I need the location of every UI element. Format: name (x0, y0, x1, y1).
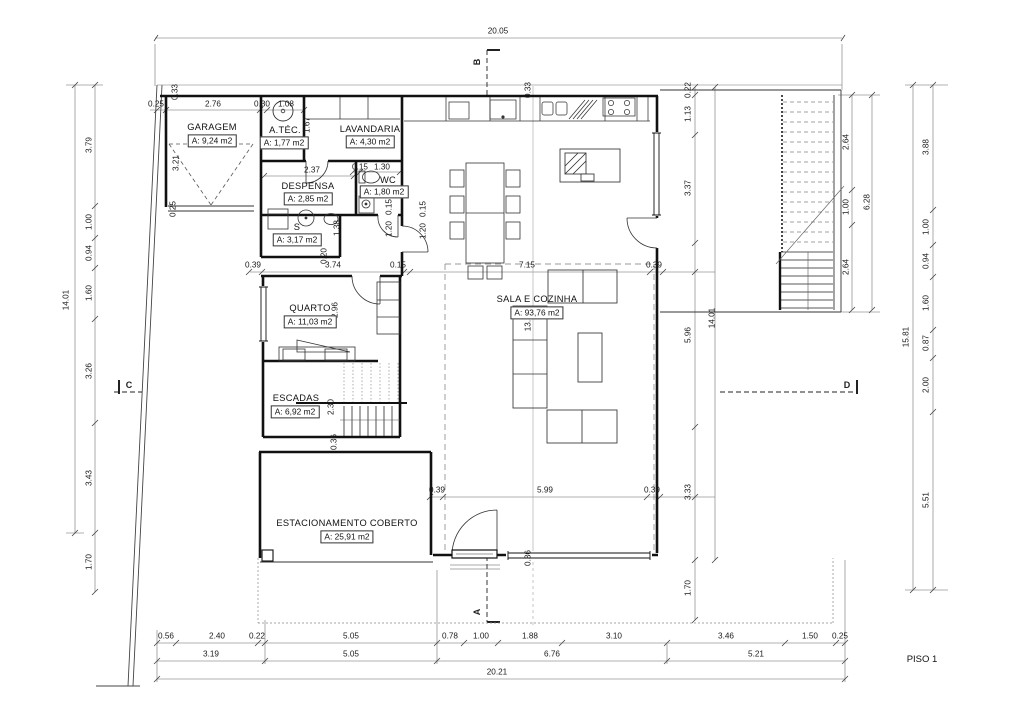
dim-label: 0.87 (921, 335, 930, 351)
dim-label: 5.99 (537, 485, 553, 494)
dim-label: 20.05 (488, 26, 509, 35)
dim-label: 0.36 (329, 434, 338, 450)
room-label-quarto: QUARTO (289, 303, 330, 313)
dim-label: 0.78 (442, 631, 458, 640)
dim-label: 2.64 (841, 259, 850, 275)
room-area-estacionamento: A: 25,91 m2 (320, 530, 373, 543)
dim-label: 2.37 (304, 165, 320, 174)
exterior-stairs (776, 95, 844, 310)
kitchen-counter (306, 97, 650, 121)
room-area-sala: A: 93,76 m2 (510, 306, 563, 319)
dim-label: 0.20 (319, 248, 328, 264)
dim-label: 1.00 (473, 631, 489, 640)
section-marker-d: D (844, 381, 851, 391)
dim-label: 5.51 (921, 492, 930, 508)
dim-label: 2.30 (326, 399, 335, 415)
room-label-estacionamento: ESTACIONAMENTO COBERTO (276, 518, 417, 528)
dim-label: 6.28 (862, 194, 871, 210)
garage-door (168, 144, 254, 211)
dim-label: 0.39 (429, 485, 445, 494)
dim-label: 0.15 (352, 162, 368, 171)
room-label-sala: SALA E COZINHA (497, 294, 578, 304)
dim-label: 3.43 (84, 470, 93, 486)
dim-label: 14.01 (61, 290, 70, 311)
dim-label: 14.01 (707, 308, 716, 329)
room-label-atec: A.TÉC. (269, 125, 301, 135)
dim-label: 1.00 (841, 199, 850, 215)
roof-projection-dotted (258, 558, 833, 623)
dim-label: 1.20 (384, 221, 393, 237)
dim-label: 15.81 (901, 327, 910, 348)
section-marker-c: C (126, 381, 133, 391)
dim-label: 2.64 (841, 134, 850, 150)
room-label-garagem: GARAGEM (187, 122, 237, 132)
entrance-door (450, 550, 500, 569)
drawing-title: PISO 1 (907, 655, 938, 665)
dim-label: 3.37 (683, 180, 692, 196)
dim-label: 1.13 (683, 106, 692, 122)
dim-label: 0.15 (390, 260, 406, 269)
dim-label: 1.00 (921, 219, 930, 235)
walls (160, 96, 658, 558)
dim-label: 2.76 (205, 99, 221, 108)
kitchen-island (560, 149, 620, 182)
dim-label: 0.25 (832, 631, 848, 640)
dim-label: 0.15 (384, 199, 393, 215)
room-area-garagem: A: 9,24 m2 (188, 134, 237, 147)
dim-label: 0.25 (168, 201, 177, 217)
dim-label: 3.10 (606, 631, 622, 640)
dim-label: 1.60 (84, 285, 93, 301)
dim-label: 2.40 (209, 631, 225, 640)
dim-label: 2.00 (921, 377, 930, 393)
dim-label: 6.76 (544, 649, 560, 658)
dim-label: 0.33 (170, 84, 179, 100)
dim-label: 1.00 (84, 214, 93, 230)
dim-label: 1.67 (302, 117, 311, 133)
room-area-wc: A: 1,80 m2 (360, 185, 409, 198)
dim-label: 0.22 (249, 631, 265, 640)
dim-label: 0.94 (84, 245, 93, 261)
dim-label: 1.70 (84, 554, 93, 570)
dim-label: 0.33 (523, 82, 532, 98)
dim-label: 0.39 (245, 260, 261, 269)
section-marker-b: B (473, 59, 483, 66)
dim-label: 1.70 (683, 580, 692, 596)
door-swings (306, 161, 657, 555)
dim-label: 0.56 (158, 631, 174, 640)
room-area-escadas: A: 6,92 m2 (271, 405, 320, 418)
room-area-lavandaria: A: 4,30 m2 (346, 135, 395, 148)
dim-label: 3.79 (84, 137, 93, 153)
dim-label: 3.21 (171, 155, 180, 171)
room-label-escadas: ESCADAS (273, 393, 320, 403)
parking-pillar (262, 550, 273, 561)
dim-label: 0.30 (254, 99, 270, 108)
room-label-s: S (294, 222, 301, 232)
dim-label: 5.05 (343, 649, 359, 658)
dim-label: 0.25 (148, 99, 164, 108)
dim-label: 0.39 (644, 485, 660, 494)
dim-label: 3.19 (203, 649, 219, 658)
dim-label: 20.21 (487, 667, 508, 676)
room-label-wc: WC (380, 175, 396, 185)
dim-label: 3.88 (921, 139, 930, 155)
room-area-quarto: A: 11,03 m2 (284, 315, 337, 328)
dim-label: 3.33 (683, 484, 692, 500)
room-label-lavandaria: LAVANDARIA (340, 124, 401, 134)
dining-table-set (450, 163, 520, 279)
room-area-despensa: A: 2,85 m2 (284, 192, 333, 205)
dim-label: 1.60 (921, 295, 930, 311)
section-marker-a: A (473, 609, 483, 616)
dim-label: 5.96 (683, 327, 692, 343)
dim-label: 1.38 (332, 220, 341, 236)
dim-label: 5.05 (343, 631, 359, 640)
room-area-atec: A: 1,77 m2 (260, 136, 309, 149)
dim-label: 5.21 (748, 649, 764, 658)
dim-label: 1.08 (278, 99, 294, 108)
dim-label: 1.30 (374, 162, 390, 171)
dim-label: 1.88 (522, 631, 538, 640)
dim-label: 3.46 (718, 631, 734, 640)
dim-label: 0.15 (418, 201, 427, 217)
floor-plan-sheet: 20.05 0.56 2.40 0.22 5.05 0.78 1.00 1.88… (0, 0, 1010, 720)
exterior-terrace (660, 90, 841, 312)
room-area-s: A: 3,17 m2 (273, 233, 322, 246)
dim-label: 1.50 (802, 631, 818, 640)
dim-label: 0.36 (523, 550, 532, 566)
dim-label: 3.26 (84, 363, 93, 379)
room-label-despensa: DESPENSA (281, 181, 334, 191)
dim-label: 1.20 (418, 223, 427, 239)
dim-label: 0.39 (646, 260, 662, 269)
dim-label: 0.22 (683, 82, 692, 98)
dim-label: 0.94 (921, 253, 930, 269)
dimension-ticks (154, 35, 848, 682)
dim-label: 7.15 (519, 260, 535, 269)
